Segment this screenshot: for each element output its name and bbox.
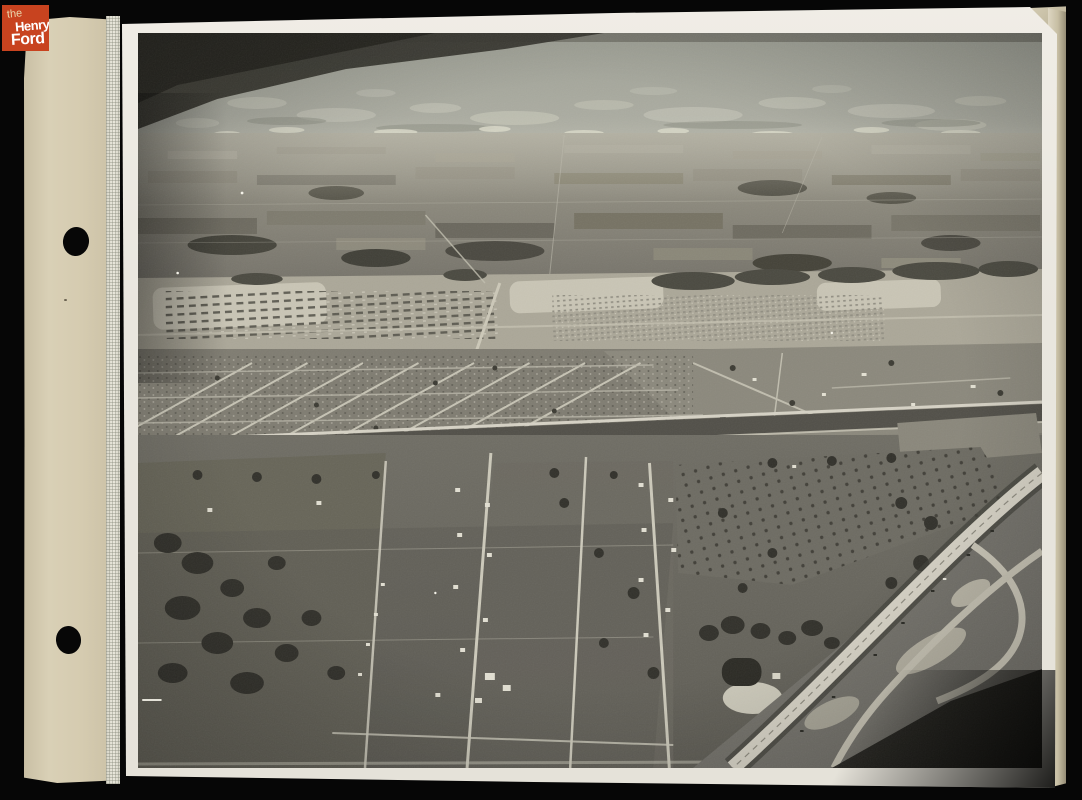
aerial-photograph — [138, 33, 1042, 768]
henry-ford-logo: the Henry Ford — [2, 5, 49, 51]
album-binder-strip — [24, 17, 107, 783]
archival-photo-page: the Henry Ford — [0, 0, 1082, 800]
logo-word-ford: Ford — [11, 31, 45, 49]
photo-print-border — [114, 0, 1060, 794]
aerial-photo-image — [138, 33, 1042, 768]
binding-tape-edge — [106, 16, 120, 784]
paper-fleck — [64, 299, 67, 301]
